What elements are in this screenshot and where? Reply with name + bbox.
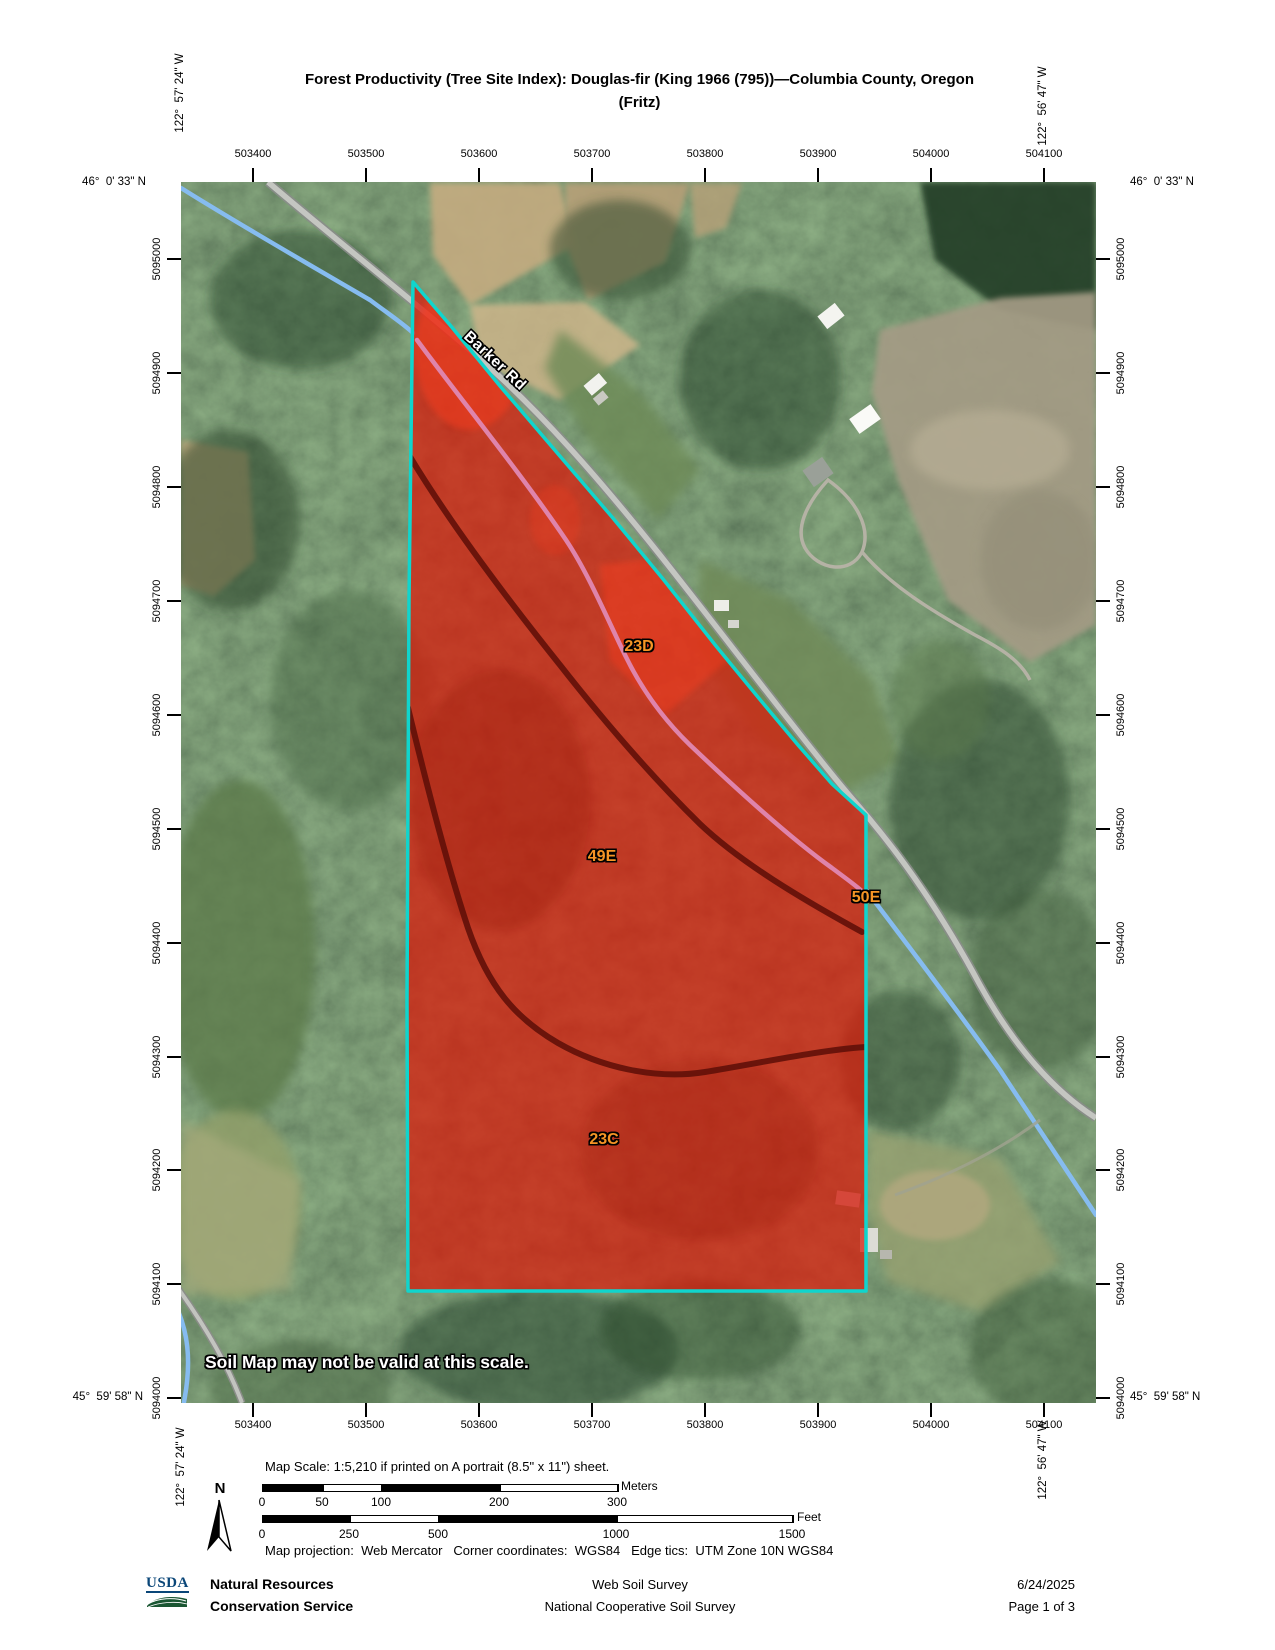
soil-unit-label-49e: 49E [567, 848, 637, 866]
y-tick-label: 5095000 [1114, 219, 1128, 299]
y-tick-label: 5094000 [150, 1358, 164, 1438]
meters-tick: 100 [356, 1495, 406, 1509]
feet-scale-bar [262, 1515, 794, 1523]
soil-unit-label-50e: 50E [831, 889, 901, 907]
corner-lon-bottom-right: 122° 56' 47" W [1037, 1400, 1049, 1520]
pasture [165, 780, 315, 1120]
corner-lon-bottom-left: 122° 57' 24" W [175, 1407, 187, 1527]
x-tick-label: 504100 [1004, 148, 1084, 160]
soil-unit-label-23d: 23D [604, 638, 674, 656]
x-tick-label: 503800 [665, 148, 745, 160]
x-tick-label: 503600 [439, 1419, 519, 1431]
x-tick-label: 504100 [1004, 1419, 1084, 1431]
aerial-imagery [160, 182, 1130, 1440]
footer-date: 6/24/2025 [880, 1577, 1075, 1592]
x-tick-label: 503700 [552, 1419, 632, 1431]
y-tick-label: 5095000 [150, 219, 164, 299]
meters-unit-label: Meters [621, 1479, 658, 1493]
y-tick-label: 5094100 [1114, 1244, 1128, 1324]
page-title: Forest Productivity (Tree Site Index): D… [182, 71, 1097, 88]
page-subtitle: (Fritz) [182, 94, 1097, 111]
usda-swoosh-icon [146, 1594, 188, 1608]
footer-center-line1: Web Soil Survey [430, 1577, 850, 1592]
soil-unit-label-23c: 23C [569, 1131, 639, 1149]
meters-tick: 300 [592, 1495, 642, 1509]
map-scale-text: Map Scale: 1:5,210 if printed on A portr… [265, 1459, 609, 1474]
y-tick-label: 5094600 [1114, 675, 1128, 755]
y-tick-label: 5094700 [150, 561, 164, 641]
x-tick-label: 503500 [326, 1419, 406, 1431]
y-tick-label: 5094400 [1114, 903, 1128, 983]
y-tick-label: 5094000 [1114, 1358, 1128, 1438]
feet-unit-label: Feet [797, 1510, 821, 1524]
y-tick-label: 5094100 [150, 1244, 164, 1324]
corner-lat-top-right: 46° 0' 33" N [1130, 176, 1250, 188]
projection-text: Map projection: Web Mercator Corner coor… [265, 1543, 833, 1558]
y-tick-label: 5094500 [150, 789, 164, 869]
y-tick-label: 5094400 [150, 903, 164, 983]
corner-lat-bottom-right: 45° 59' 58" N [1130, 1391, 1250, 1403]
footer-center-line2: National Cooperative Soil Survey [430, 1599, 850, 1614]
x-tick-label: 503900 [778, 1419, 858, 1431]
soil-map-page: Forest Productivity (Tree Site Index): D… [0, 0, 1275, 1650]
y-tick-label: 5094200 [1114, 1130, 1128, 1210]
corner-lat-top-left: 46° 0' 33" N [38, 176, 146, 188]
x-tick-label: 504000 [891, 148, 971, 160]
y-tick-label: 5094300 [1114, 1017, 1128, 1097]
cleared-streak [910, 410, 1070, 490]
meters-scale-bar [262, 1484, 619, 1492]
y-tick-label: 5094800 [150, 447, 164, 527]
y-tick-label: 5094300 [150, 1017, 164, 1097]
x-tick-label: 503700 [552, 148, 632, 160]
feet-tick: 0 [237, 1527, 287, 1541]
usda-logo-text: USDA [146, 1576, 189, 1593]
x-tick-label: 503400 [213, 1419, 293, 1431]
y-tick-label: 5094800 [1114, 447, 1128, 527]
y-tick-label: 5094900 [150, 333, 164, 413]
y-tick-label: 5094600 [150, 675, 164, 755]
footer-page-number: Page 1 of 3 [880, 1599, 1075, 1614]
y-tick-label: 5094700 [1114, 561, 1128, 641]
x-tick-label: 503800 [665, 1419, 745, 1431]
scale-warning: Soil Map may not be valid at this scale. [205, 1352, 529, 1373]
feet-tick: 1500 [767, 1527, 817, 1541]
usda-logo: USDA [146, 1574, 192, 1608]
feet-tick: 250 [324, 1527, 374, 1541]
y-tick-label: 5094200 [150, 1130, 164, 1210]
north-label: N [202, 1480, 238, 1497]
feet-tick: 500 [413, 1527, 463, 1541]
footer-agency-line1: Natural Resources [210, 1576, 334, 1592]
x-tick-label: 504000 [891, 1419, 971, 1431]
y-tick-label: 5094500 [1114, 789, 1128, 869]
cleared-streak [980, 490, 1100, 630]
corner-lat-bottom-left: 45° 59' 58" N [35, 1391, 143, 1403]
meters-tick: 200 [474, 1495, 524, 1509]
x-tick-label: 503500 [326, 148, 406, 160]
footer-agency-line2: Conservation Service [210, 1598, 353, 1614]
feet-tick: 1000 [591, 1527, 641, 1541]
x-tick-label: 503600 [439, 148, 519, 160]
x-tick-label: 503900 [778, 148, 858, 160]
corner-lon-top-left: 122° 57' 24" W [174, 33, 186, 153]
y-tick-label: 5094900 [1114, 333, 1128, 413]
north-arrow-icon [207, 1500, 231, 1551]
meters-tick: 50 [297, 1495, 347, 1509]
meters-tick: 0 [237, 1495, 287, 1509]
map-graphics [0, 0, 1275, 1650]
x-tick-label: 503400 [213, 148, 293, 160]
